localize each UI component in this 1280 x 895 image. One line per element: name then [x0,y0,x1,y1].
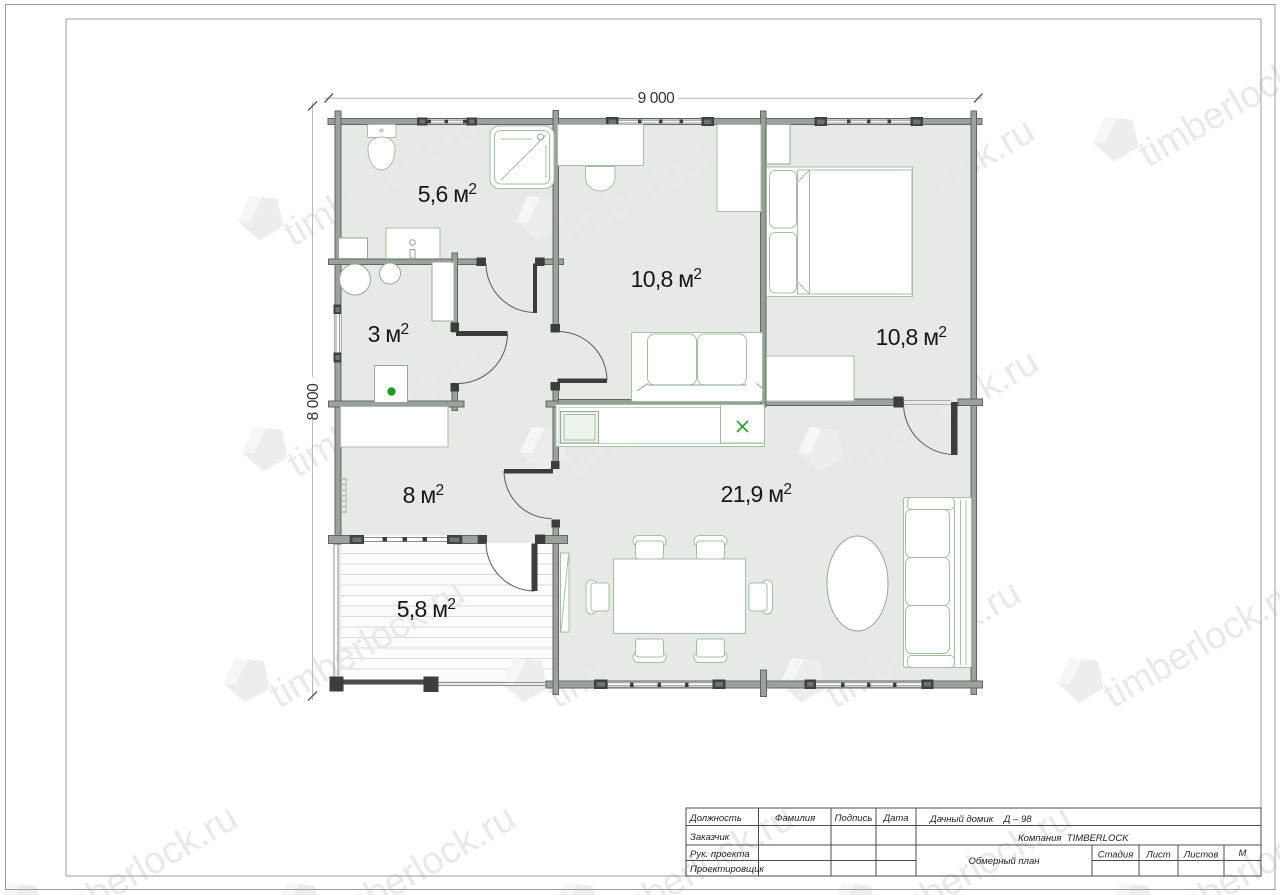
svg-text:Листов: Листов [1183,850,1219,861]
svg-text:Дачный домик Д – 98: Дачный домик Д – 98 [929,814,1032,825]
svg-text:timberlock.ru: timberlock.ru [1132,31,1280,176]
svg-text:Должность: Должность [689,813,742,824]
svg-text:timberlock.ru: timberlock.ru [36,797,245,895]
svg-text:Фамилия: Фамилия [775,813,815,824]
svg-text:М: М [1239,848,1247,859]
svg-text:21,9 м2: 21,9 м2 [721,481,792,507]
svg-text:9 000: 9 000 [638,90,676,107]
svg-text:timberlock.ru: timberlock.ru [870,797,1079,895]
svg-text:5,8 м2: 5,8 м2 [397,596,456,622]
svg-text:Подпись: Подпись [835,813,873,824]
svg-text:Дата: Дата [882,813,908,824]
svg-text:8 000: 8 000 [305,383,322,421]
svg-text:Проектировщик: Проектировщик [690,864,764,875]
svg-text:10,8 м2: 10,8 м2 [876,324,947,350]
svg-text:timberlock.ru: timberlock.ru [314,797,523,895]
svg-text:Стадия: Стадия [1098,850,1134,861]
svg-text:Лист: Лист [1145,850,1171,861]
svg-text:timberlock.ru: timberlock.ru [592,797,801,895]
svg-text:Рук. проекта: Рук. проекта [690,849,750,860]
svg-text:10,8 м2: 10,8 м2 [631,266,702,292]
svg-text:timberlock.ru: timberlock.ru [1148,797,1280,895]
svg-text:Заказчик: Заказчик [690,832,730,843]
svg-text:5,6 м2: 5,6 м2 [418,181,477,207]
svg-text:timberlock.ru: timberlock.ru [1097,572,1280,717]
svg-text:Компания TIMBERLOCK: Компания TIMBERLOCK [1018,833,1129,844]
svg-text:Обмерный план: Обмерный план [968,856,1040,867]
